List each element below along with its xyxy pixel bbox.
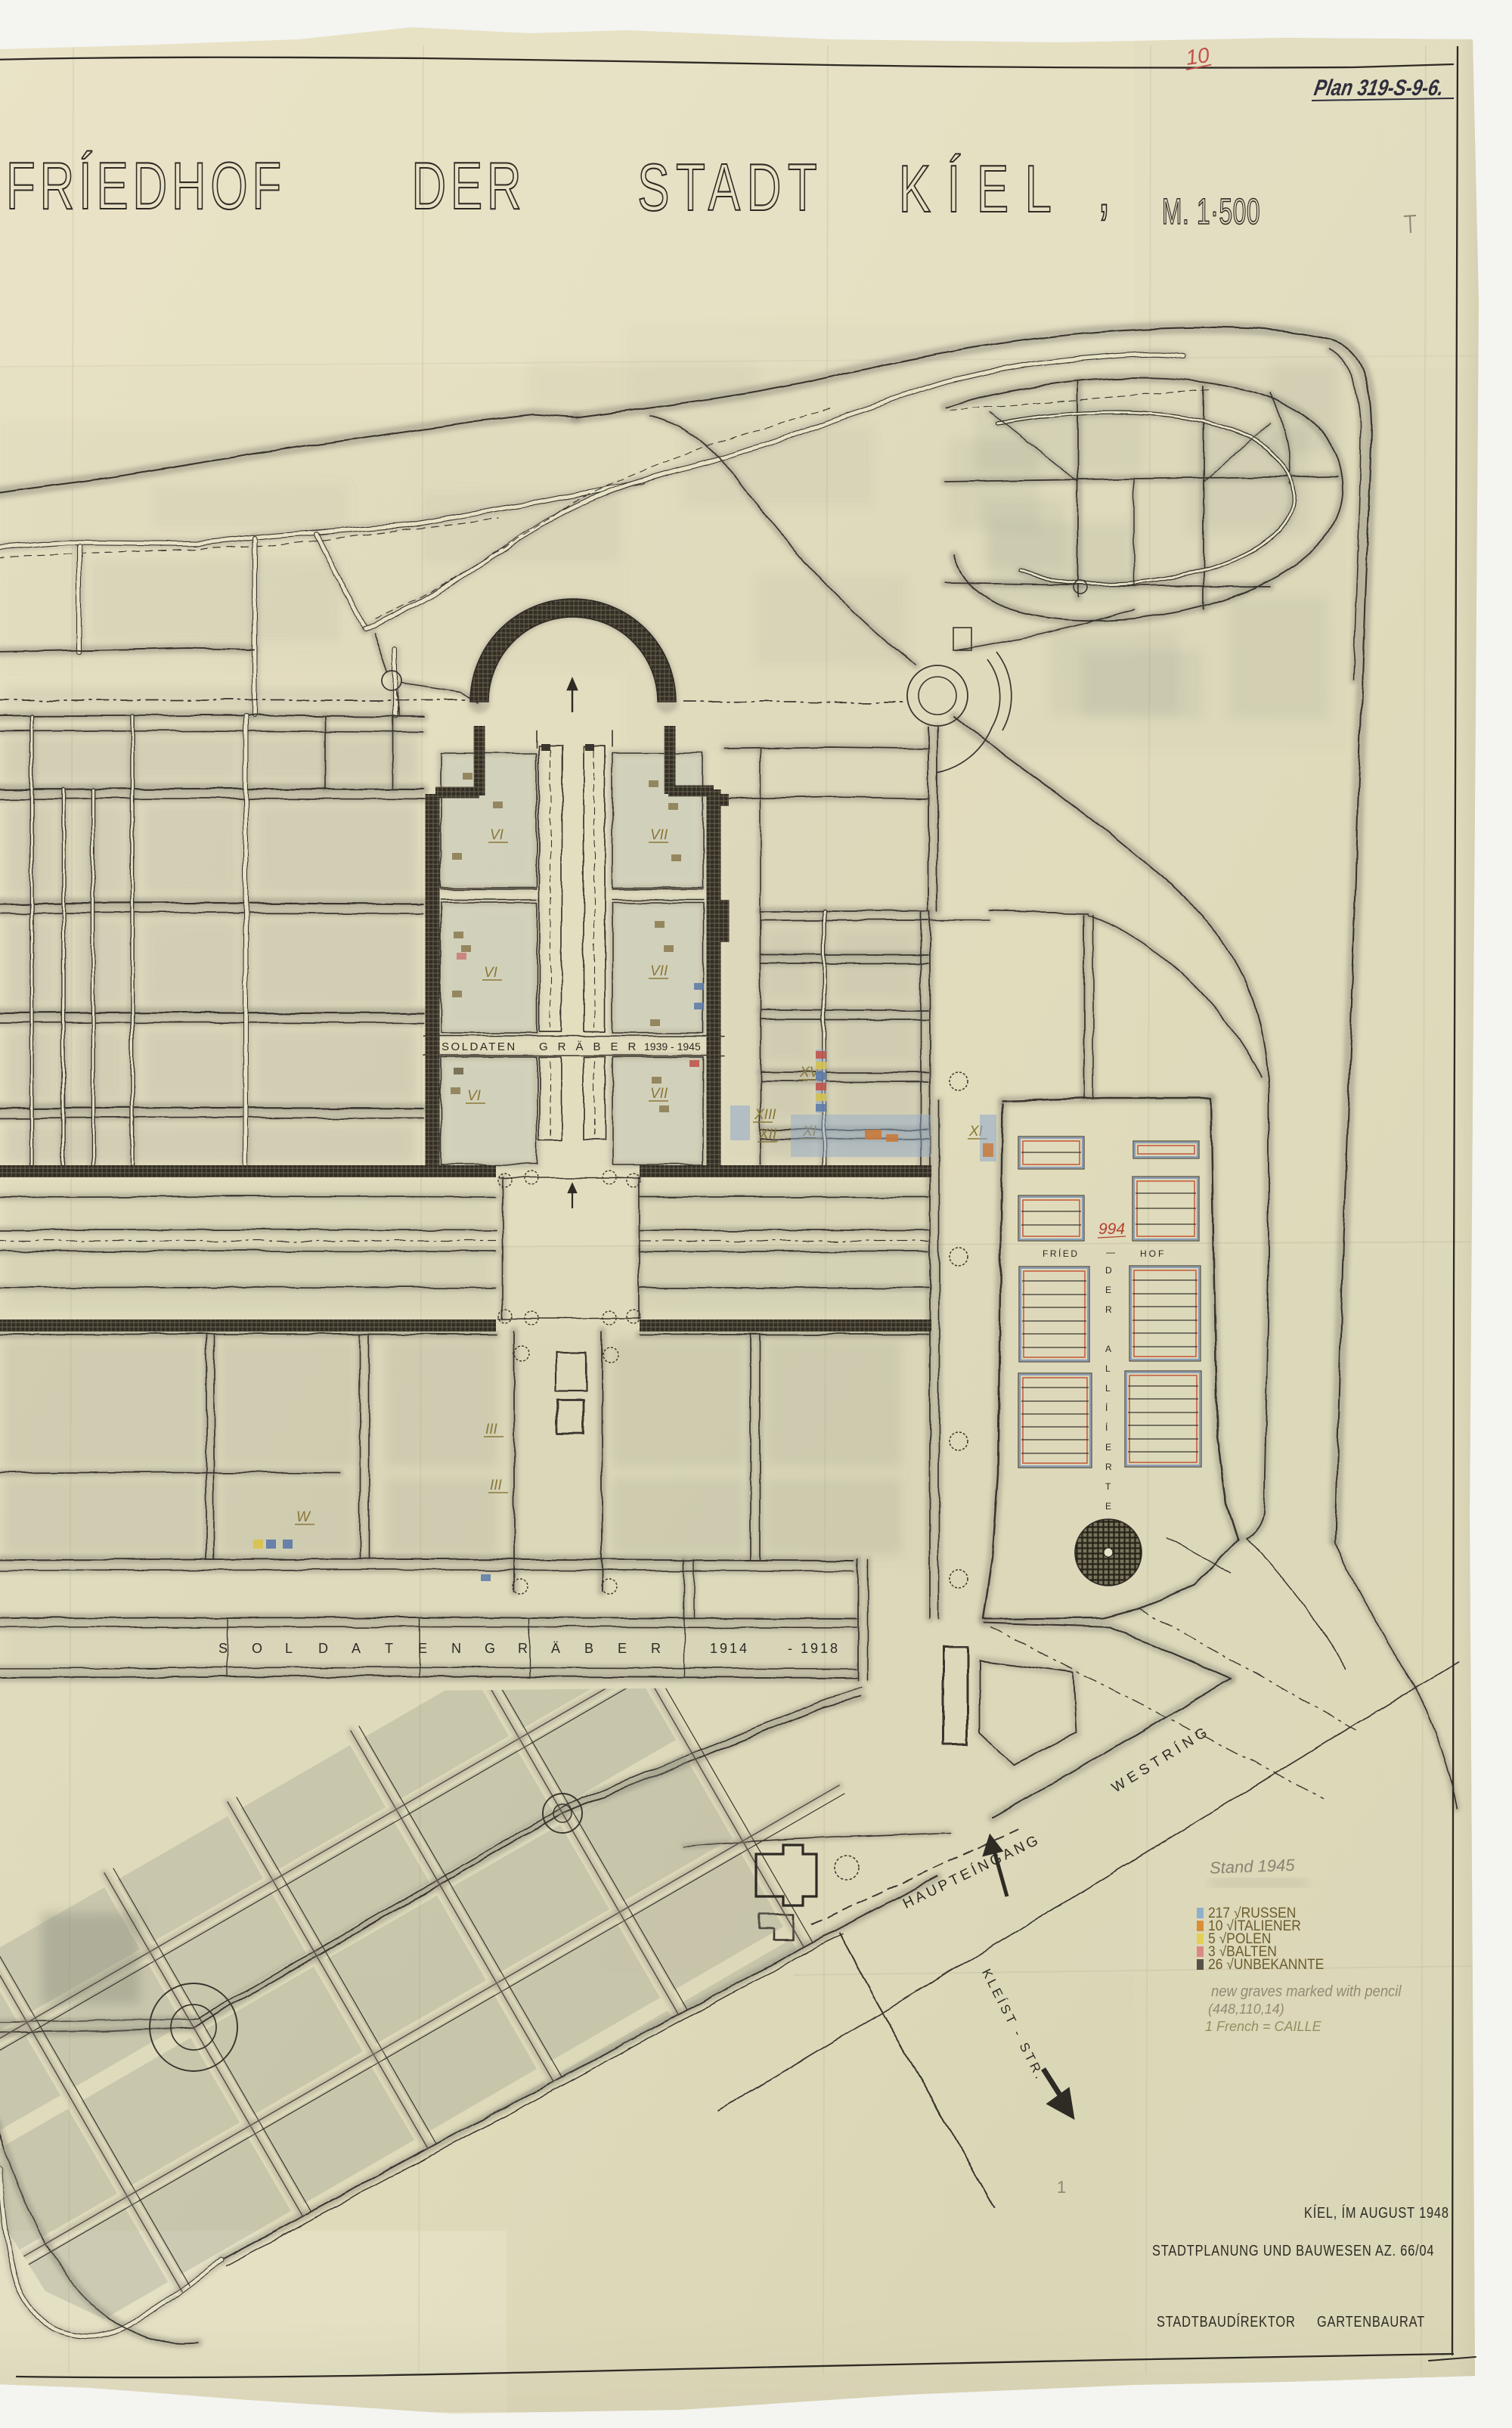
svg-text:STADT: STADT [637,151,823,225]
svg-text:HOF: HOF [1140,1248,1166,1259]
svg-text:SOLDATEN: SOLDATEN [442,1040,517,1053]
svg-text:N: N [451,1641,461,1656]
svg-text:A: A [352,1641,361,1656]
svg-text:E: E [1105,1501,1111,1512]
svg-text:—: — [1106,1247,1115,1257]
svg-text:Plan 319-S-9-6.: Plan 319-S-9-6. [1312,75,1446,101]
svg-text:STADTPLANUNG UND BAUWESEN A: STADTPLANUNG UND BAUWESEN AZ. 66/04 [1152,2241,1434,2259]
svg-text:E: E [618,1641,627,1656]
svg-text:G: G [485,1641,495,1656]
svg-text:L: L [285,1641,293,1656]
svg-text:- 1918: - 1918 [788,1641,840,1656]
svg-text:VII: VII [650,963,668,979]
svg-text:VI: VI [490,827,504,843]
svg-text:1914: 1914 [710,1641,749,1656]
svg-text:A: A [1105,1344,1111,1354]
svg-text:VI: VI [467,1088,482,1104]
svg-text:M. 1·500: M. 1·500 [1162,191,1260,231]
svg-text:VII: VII [650,827,668,843]
svg-text:26 √UNBEKANNTE: 26 √UNBEKANNTE [1208,1955,1324,1972]
svg-text:XII: XII [758,1127,777,1143]
svg-text:Ä: Ä [551,1641,560,1656]
svg-text:S: S [218,1641,228,1656]
svg-text:STADTBAUDÍREKTOR: STADTBAUDÍREKTOR [1157,2312,1296,2330]
svg-text:R: R [1105,1462,1112,1472]
svg-text:E: E [1105,1442,1111,1453]
svg-text:III: III [490,1478,503,1493]
svg-text:FRÍED: FRÍED [1043,1248,1080,1259]
svg-text:L: L [1105,1363,1111,1374]
svg-text:KÍEL: KÍEL [899,153,1068,227]
svg-text:GRÄBER: GRÄBER [539,1040,646,1053]
svg-text:Stand 1945: Stand 1945 [1210,1856,1296,1878]
svg-text:R: R [1105,1304,1112,1315]
svg-text:KÍEL, ÍM AUGUST 1948: KÍEL, ÍM AUGUST 1948 [1304,2203,1449,2221]
svg-text:VII: VII [650,1086,668,1102]
svg-text:O: O [252,1641,262,1656]
svg-text:D: D [1105,1265,1112,1276]
svg-text:T: T [385,1641,393,1656]
svg-text:E: E [418,1641,427,1656]
svg-text:1939 - 1945: 1939 - 1945 [644,1040,701,1053]
svg-text:FRÍEDHOF: FRÍEDHOF [6,150,286,224]
svg-text:R: R [651,1641,661,1656]
svg-text:D: D [318,1641,328,1656]
svg-text:W: W [296,1509,311,1525]
svg-text:R: R [518,1641,528,1656]
svg-text:III: III [485,1422,498,1437]
svg-text:DER: DER [411,150,525,224]
svg-text:VI: VI [484,965,498,981]
svg-text:L: L [1105,1383,1111,1394]
svg-text:,: , [1098,153,1115,227]
svg-text:994: 994 [1098,1220,1125,1238]
svg-text:GARTENBAURAT: GARTENBAURAT [1317,2312,1425,2330]
svg-text:E: E [1105,1285,1111,1295]
svg-text:B: B [584,1641,593,1656]
svg-text:1: 1 [1057,2178,1066,2197]
svg-text:new graves marked with pencil: new graves marked with pencil [1211,1983,1402,2000]
svg-text:(448,110,14): (448,110,14) [1208,2002,1284,2017]
svg-text:XIII: XIII [754,1107,776,1123]
svg-text:1 French = CAILLE: 1 French = CAILLE [1205,2019,1322,2034]
svg-text:T: T [1105,1481,1111,1492]
